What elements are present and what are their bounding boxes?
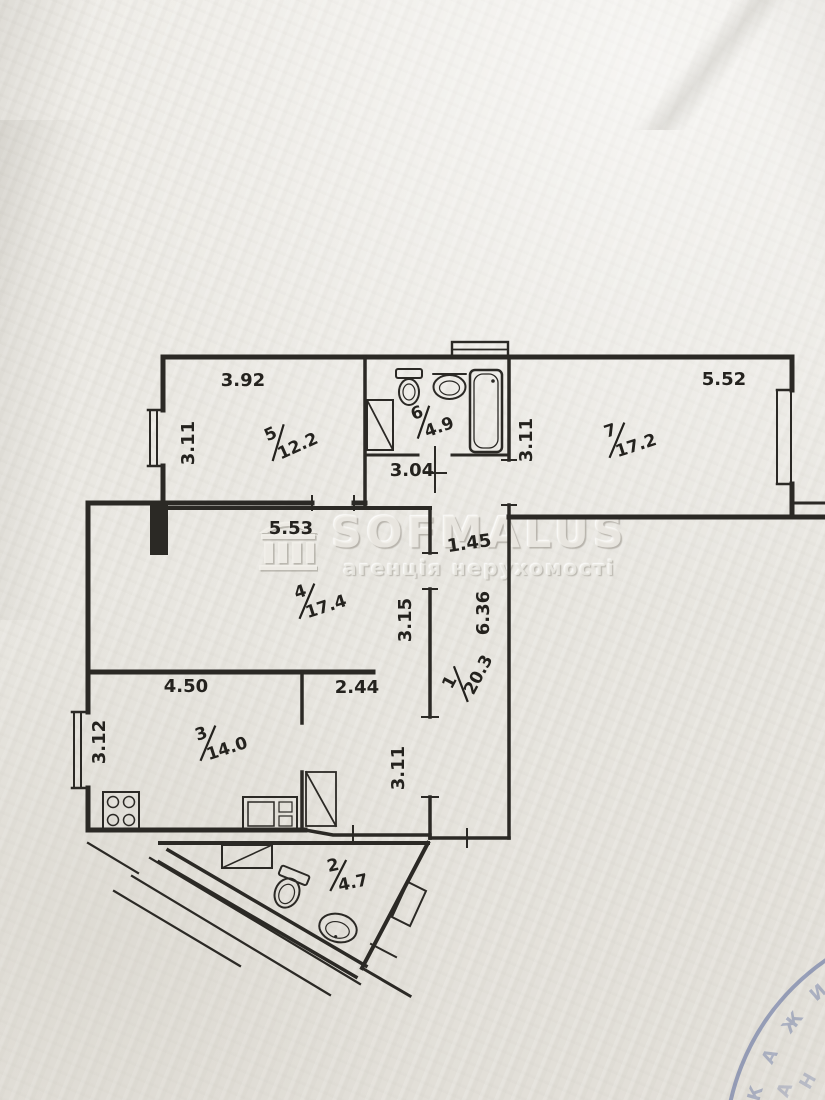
dim-hall-depth: 3.11 — [388, 746, 409, 790]
dim-room4-width: 5.53 — [269, 518, 313, 539]
fixtures — [103, 369, 502, 946]
room7-label: 7 17.2 — [599, 409, 660, 464]
floor-plan-photo: SOFMALUS агенція нерухомості — [0, 0, 825, 1100]
dim-room5-width: 3.92 — [221, 370, 265, 391]
dim-lobby-width: 3.04 — [390, 460, 434, 481]
dim-corridor-width: 1.45 — [446, 530, 493, 557]
room1-label: 1 20.3 — [437, 641, 498, 705]
dim-corridor-length: 6.36 — [473, 591, 494, 635]
wc-toilet-icon — [267, 865, 309, 912]
floor-plan-drawing: 3.92 3.11 5 12.2 6 4.9 3.04 5.52 3.11 7 … — [0, 0, 825, 1100]
dim-room5-depth: 3.11 — [178, 421, 199, 465]
room2-label: 2 4.7 — [323, 850, 370, 898]
dim-room7-depth: 3.11 — [516, 418, 537, 462]
labels: 3.92 3.11 5 12.2 6 4.9 3.04 5.52 3.11 7 … — [89, 369, 746, 898]
dim-room3-width: 4.50 — [164, 676, 208, 697]
room4-label: 4 17.4 — [289, 570, 350, 625]
room1-area: 20.3 — [460, 652, 497, 698]
dim-nook-width: 2.44 — [335, 677, 379, 698]
stove-icon — [103, 792, 139, 830]
bathtub-icon — [470, 370, 502, 452]
room6-label: 6 4.9 — [406, 393, 457, 445]
kitchen-sink-icon — [243, 797, 297, 831]
dim-room3-depth: 3.12 — [89, 720, 110, 764]
room5-label: 5 12.2 — [258, 409, 321, 468]
room3-label: 3 14.0 — [190, 712, 251, 767]
dim-room4-depth: 3.15 — [395, 598, 416, 642]
shower-tray-icon — [367, 400, 393, 450]
dim-room7-width: 5.52 — [702, 369, 746, 390]
room6-area: 4.9 — [422, 413, 457, 442]
room2-area: 4.7 — [336, 870, 370, 896]
sink-icon — [433, 374, 466, 399]
toilet-icon — [396, 369, 422, 405]
